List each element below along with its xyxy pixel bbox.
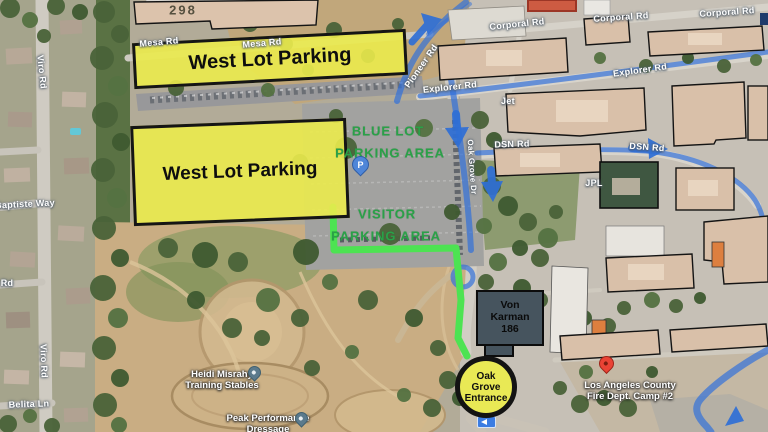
poi-label-fire-dept: Los Angeles County Fire Dept. Camp #2 [584,380,676,402]
visitor-lot-label-line2: PARKING AREA [331,229,441,244]
west-lot-parking-label: West Lot Parking [188,43,352,74]
stables-label-line2: Training Stables [185,380,258,391]
von-karman-building: Von Karman 186 [476,290,544,346]
west-lot-parking-label: West Lot Parking [162,158,318,186]
fire-dept-label-line1: Los Angeles County [584,380,676,391]
west-lot-parking-overlay-main: West Lot Parking [130,118,350,226]
visitor-lot-label-line1: VISITOR [358,207,416,222]
parking-pin-letter: P [357,160,363,170]
road-label-rd-partial: Rd [1,278,14,288]
oak-grove-entrance-badge: Oak Grove Entrance [455,356,517,418]
von-karman-label-line3: 186 [501,324,519,336]
road-label-belita-ln: Belita Ln [8,398,49,409]
blue-lot-label-line1: BLUE LOT [352,124,424,139]
blue-lot-label-line2: PARKING AREA [335,146,445,161]
fire-dept-label-line2: Fire Dept. Camp #2 [584,391,676,402]
oak-grove-label-line2: Grove [472,382,501,393]
poi-label-jet: Jet [501,96,515,106]
building-298-label: 298 [169,3,197,18]
dressage-label-line2: Dressage [227,424,310,432]
oak-grove-label-line3: Entrance [465,393,508,404]
satellite-map: West Lot Parking West Lot Parking BLUE L… [0,0,768,432]
poi-label-jpl: JPL [585,178,602,188]
road-label-dsn-rd: DSN Rd [494,138,530,149]
road-label-viro-rd: Viro Rd [38,344,49,378]
oak-grove-label-line1: Oak [477,371,496,382]
